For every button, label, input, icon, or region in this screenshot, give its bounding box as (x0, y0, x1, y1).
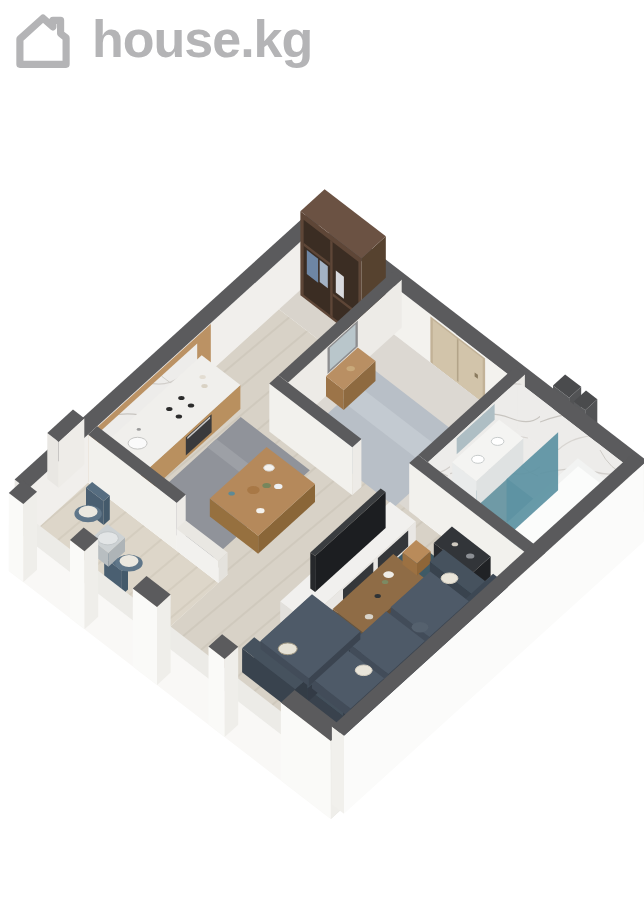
stove-burner-3 (166, 407, 172, 411)
wall-southwest-seg-4-se-face (225, 647, 239, 737)
coffee-decor-tray (383, 571, 394, 578)
wall-pilaster-sw-face (47, 433, 58, 488)
dining-bowl-teal (228, 492, 234, 496)
wall-hallway-south-se-face (352, 439, 361, 495)
wall-southwest-seg-4-sw-face (209, 647, 225, 737)
vanity-basin-1 (491, 437, 504, 445)
site-logo-text: house.kg (92, 13, 312, 65)
dining-plant (262, 483, 270, 488)
kitchen-jar-1 (199, 375, 205, 379)
house-logo-icon (10, 8, 76, 70)
wall-southeast-sw-face (332, 726, 344, 813)
kitchen-jar-2 (201, 384, 207, 388)
dining-plate-2 (274, 484, 282, 489)
wardrobe-divider (330, 240, 332, 317)
kitchen-faucet (137, 428, 141, 431)
vanity-basin-2 (472, 455, 485, 463)
coffee-decor-bowl (365, 614, 373, 619)
side-table-cup (452, 542, 458, 546)
coffee-decor-candle (375, 594, 381, 598)
side-table-book (466, 553, 474, 558)
sofa-pillow-navy (412, 622, 429, 633)
dining-plate-1 (264, 465, 275, 472)
entrance-door-split (457, 339, 459, 382)
tv-sw-face (310, 552, 315, 592)
balcony-chair-1-cushion (79, 506, 98, 518)
sofa-pillow-white-2 (355, 665, 372, 676)
console-vase (347, 366, 355, 371)
dining-board (247, 486, 260, 494)
wall-southwest-seg-1-sw-face (9, 493, 23, 582)
sofa-pillow-white-1 (441, 573, 458, 584)
wall-southwest-seg-1-se-face (23, 492, 37, 582)
balcony-chair-2-cushion (120, 555, 139, 567)
stove-burner-1 (178, 396, 184, 400)
stove-burner-2 (188, 404, 194, 408)
balcony-table-top (97, 532, 118, 545)
site-logo: house.kg (10, 8, 312, 70)
coffee-decor-plant (382, 580, 388, 584)
dining-plate-3 (256, 508, 264, 513)
sofa-pillow-striped (278, 643, 297, 655)
kitchen-sink (128, 437, 147, 449)
floorplan-3d-render (0, 0, 644, 900)
stove-burner-4 (176, 415, 182, 419)
wall-southwest-seg-3-se-face (157, 595, 171, 685)
wall-southwest-seg-2-sw-face (70, 540, 85, 629)
wall-southwest-seg-2-se-face (85, 539, 99, 629)
